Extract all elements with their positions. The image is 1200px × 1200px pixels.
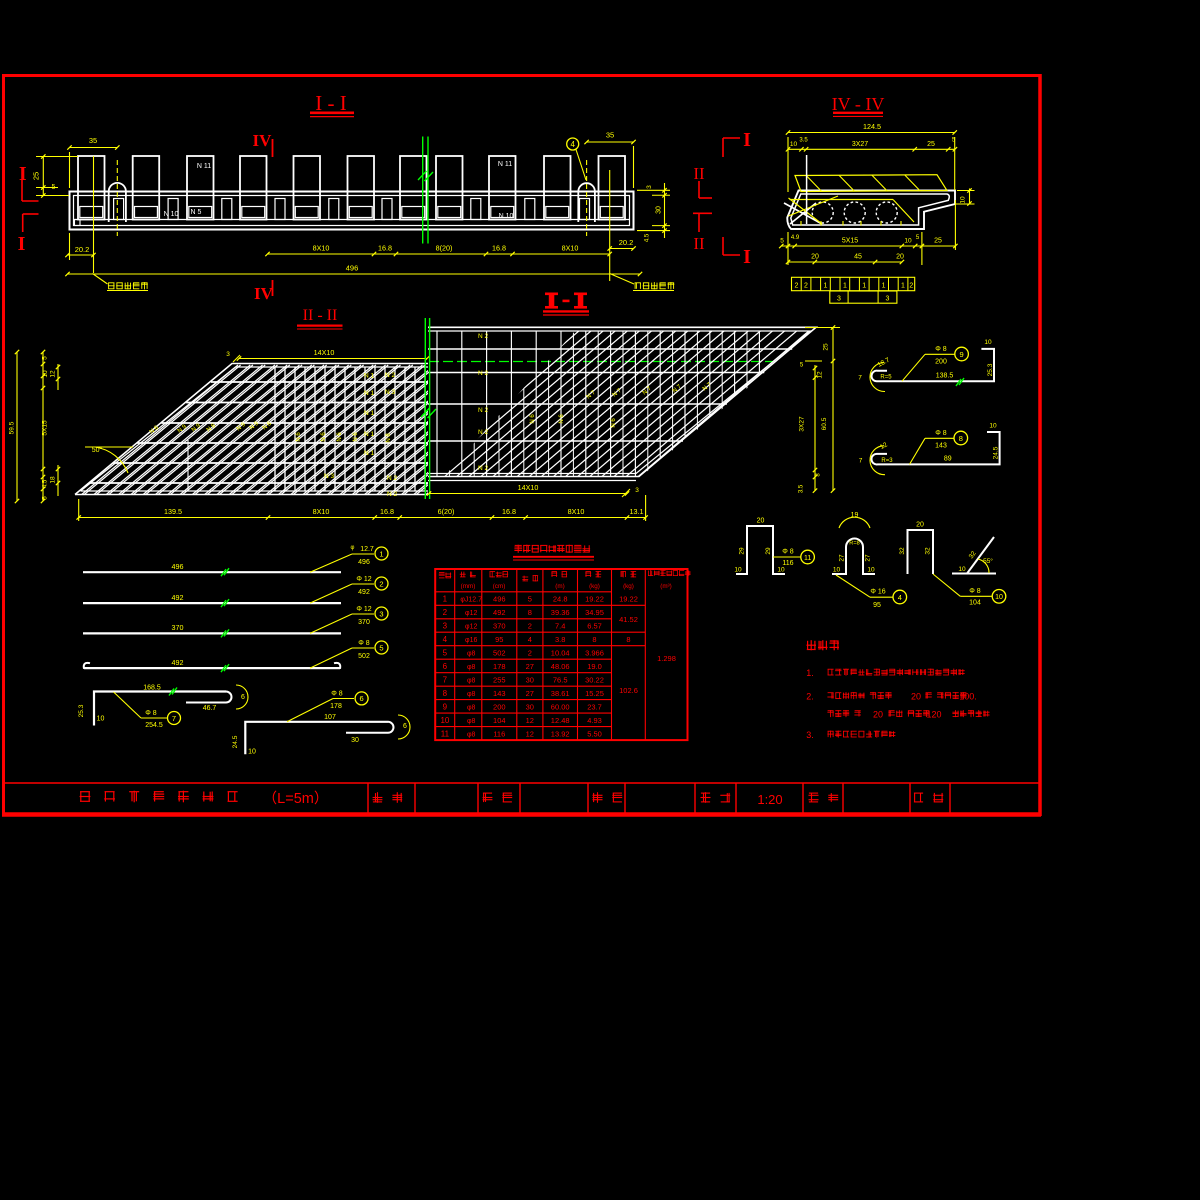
svg-text:48.06: 48.06 bbox=[551, 662, 570, 671]
svg-text:502: 502 bbox=[358, 653, 370, 660]
svg-text:N 6: N 6 bbox=[530, 414, 536, 424]
svg-text:N 8: N 8 bbox=[386, 433, 392, 443]
svg-text:N 6: N 6 bbox=[296, 432, 302, 442]
svg-text:30.22: 30.22 bbox=[585, 676, 604, 685]
svg-text:20: 20 bbox=[911, 692, 921, 702]
svg-text:4.9: 4.9 bbox=[791, 235, 800, 241]
svg-text:12: 12 bbox=[526, 716, 534, 725]
svg-text:30: 30 bbox=[526, 702, 534, 711]
svg-text:(m): (m) bbox=[555, 583, 564, 590]
svg-text:10: 10 bbox=[734, 567, 742, 574]
svg-text:492: 492 bbox=[493, 608, 506, 617]
svg-text:16.8: 16.8 bbox=[380, 507, 394, 516]
svg-text:6.57: 6.57 bbox=[587, 622, 602, 631]
svg-text:3X27: 3X27 bbox=[852, 141, 868, 148]
svg-text:60.00: 60.00 bbox=[551, 702, 570, 711]
svg-text:370: 370 bbox=[358, 619, 370, 626]
svg-text:19.0: 19.0 bbox=[587, 662, 602, 671]
svg-text:5: 5 bbox=[52, 184, 56, 191]
svg-text:34.95: 34.95 bbox=[585, 608, 604, 617]
svg-text:IV: IV bbox=[253, 131, 273, 150]
svg-text:Φ 8: Φ 8 bbox=[969, 588, 981, 595]
svg-text:5: 5 bbox=[443, 649, 448, 658]
svg-text:10: 10 bbox=[958, 566, 966, 573]
svg-text:N 1: N 1 bbox=[364, 410, 375, 417]
svg-text:76.5: 76.5 bbox=[553, 676, 568, 685]
svg-text:3X27: 3X27 bbox=[799, 416, 806, 432]
svg-text:116: 116 bbox=[782, 560, 793, 567]
svg-text:29: 29 bbox=[765, 547, 772, 555]
svg-text:Φ 8: Φ 8 bbox=[358, 640, 370, 647]
svg-text:3.966: 3.966 bbox=[585, 649, 604, 658]
svg-text:24.8: 24.8 bbox=[553, 595, 568, 604]
svg-text:116: 116 bbox=[493, 729, 505, 738]
svg-text:496: 496 bbox=[172, 562, 184, 571]
svg-text:45: 45 bbox=[854, 254, 862, 261]
svg-text:φ8: φ8 bbox=[467, 704, 476, 711]
svg-text:20: 20 bbox=[896, 254, 904, 261]
svg-text:139.5: 139.5 bbox=[164, 507, 182, 516]
svg-text:N 10: N 10 bbox=[499, 213, 514, 220]
svg-text:II - II: II - II bbox=[303, 307, 338, 324]
svg-text:3: 3 bbox=[837, 296, 841, 303]
svg-text:10: 10 bbox=[833, 567, 841, 574]
svg-text:8: 8 bbox=[959, 434, 963, 443]
svg-text:25.3: 25.3 bbox=[78, 704, 85, 717]
svg-text:502: 502 bbox=[493, 649, 506, 658]
svg-text:N 2: N 2 bbox=[478, 465, 489, 472]
svg-text:5: 5 bbox=[379, 643, 383, 652]
svg-text:Φ 8: Φ 8 bbox=[782, 549, 794, 556]
svg-text:4: 4 bbox=[570, 140, 575, 149]
svg-text:Φ 12: Φ 12 bbox=[356, 606, 371, 613]
svg-text:25: 25 bbox=[927, 141, 935, 148]
svg-text:38.61: 38.61 bbox=[551, 689, 570, 698]
svg-text:(kg): (kg) bbox=[623, 583, 634, 590]
svg-text:104: 104 bbox=[969, 600, 981, 607]
svg-text:φ8: φ8 bbox=[467, 718, 476, 725]
svg-text:φ16: φ16 bbox=[465, 637, 477, 644]
svg-text:143: 143 bbox=[493, 689, 506, 698]
svg-text:N 3: N 3 bbox=[324, 473, 335, 480]
svg-text:25.3: 25.3 bbox=[987, 363, 994, 376]
svg-text:16.8: 16.8 bbox=[378, 244, 392, 253]
svg-text:11: 11 bbox=[804, 555, 811, 562]
svg-text:8: 8 bbox=[443, 689, 448, 698]
svg-text:10: 10 bbox=[97, 716, 105, 723]
svg-text:27: 27 bbox=[865, 554, 872, 562]
svg-text:R=5: R=5 bbox=[880, 375, 892, 381]
svg-text:5X15: 5X15 bbox=[42, 420, 49, 436]
svg-text:I: I bbox=[18, 233, 26, 255]
svg-text:2: 2 bbox=[443, 608, 448, 617]
svg-text:(kg): (kg) bbox=[589, 583, 600, 590]
svg-text:Φ 12: Φ 12 bbox=[356, 576, 371, 583]
svg-text:5: 5 bbox=[42, 356, 49, 360]
svg-text:5: 5 bbox=[42, 496, 49, 500]
svg-text:19: 19 bbox=[851, 512, 859, 519]
svg-text:3.5: 3.5 bbox=[799, 484, 805, 493]
svg-text:φ8: φ8 bbox=[467, 664, 476, 671]
svg-text:89: 89 bbox=[944, 456, 952, 463]
svg-text:7: 7 bbox=[859, 458, 863, 465]
svg-text:1: 1 bbox=[843, 283, 847, 290]
svg-text:8: 8 bbox=[528, 608, 532, 617]
svg-text:4: 4 bbox=[443, 635, 448, 644]
svg-text:8X10: 8X10 bbox=[562, 244, 579, 253]
svg-text:100.: 100. bbox=[959, 692, 977, 702]
svg-text:12: 12 bbox=[526, 729, 534, 738]
svg-text:107: 107 bbox=[324, 714, 336, 721]
svg-text:30: 30 bbox=[656, 206, 663, 214]
svg-text:(mm): (mm) bbox=[461, 583, 476, 590]
svg-text:11: 11 bbox=[441, 729, 450, 738]
svg-text:492: 492 bbox=[172, 593, 184, 602]
svg-text:8: 8 bbox=[626, 635, 630, 644]
svg-text:30: 30 bbox=[526, 676, 534, 685]
svg-text:N 1: N 1 bbox=[364, 373, 375, 380]
svg-text:14X10: 14X10 bbox=[518, 483, 539, 492]
svg-text:2: 2 bbox=[528, 649, 532, 658]
svg-text:R=3: R=3 bbox=[881, 458, 893, 464]
svg-text:I: I bbox=[19, 163, 27, 185]
svg-text:25: 25 bbox=[934, 238, 942, 245]
svg-text:2.: 2. bbox=[806, 692, 814, 702]
svg-text:138.5: 138.5 bbox=[936, 373, 954, 380]
svg-text:1: 1 bbox=[443, 595, 448, 604]
svg-text:12: 12 bbox=[817, 371, 824, 379]
svg-text:φ8: φ8 bbox=[467, 678, 476, 685]
svg-text:3: 3 bbox=[646, 185, 653, 189]
svg-text:3: 3 bbox=[886, 296, 890, 303]
svg-text:2: 2 bbox=[794, 283, 798, 290]
svg-text:N 1: N 1 bbox=[364, 390, 375, 397]
svg-text:9: 9 bbox=[960, 350, 964, 359]
svg-text:60.5: 60.5 bbox=[821, 417, 828, 430]
svg-text:10: 10 bbox=[984, 339, 992, 346]
svg-text:4: 4 bbox=[528, 635, 532, 644]
svg-text:496: 496 bbox=[493, 595, 506, 604]
svg-text:3: 3 bbox=[379, 609, 383, 618]
svg-text:N 2: N 2 bbox=[478, 333, 489, 340]
svg-text:6: 6 bbox=[403, 723, 407, 730]
svg-text:255: 255 bbox=[493, 676, 506, 685]
svg-text:N 10: N 10 bbox=[164, 211, 179, 218]
svg-text:24.5: 24.5 bbox=[232, 735, 239, 748]
svg-text:I: I bbox=[743, 246, 751, 268]
svg-text:120: 120 bbox=[926, 710, 941, 720]
svg-text:178: 178 bbox=[330, 703, 342, 710]
svg-text:10: 10 bbox=[867, 567, 875, 574]
svg-text:6(20): 6(20) bbox=[438, 507, 455, 516]
svg-text:5.50: 5.50 bbox=[587, 729, 602, 738]
svg-text:492: 492 bbox=[172, 658, 184, 667]
svg-text:20: 20 bbox=[873, 710, 883, 720]
svg-text:9: 9 bbox=[443, 702, 448, 711]
svg-text:5X15: 5X15 bbox=[842, 238, 858, 245]
svg-text:N 2: N 2 bbox=[478, 407, 489, 414]
svg-text:3.: 3. bbox=[806, 730, 814, 740]
svg-text:I - I: I - I bbox=[315, 91, 346, 115]
svg-text:370: 370 bbox=[493, 622, 506, 631]
svg-text:R=8: R=8 bbox=[849, 541, 859, 547]
svg-text:N 6: N 6 bbox=[611, 418, 617, 428]
svg-text:20: 20 bbox=[757, 518, 765, 525]
svg-text:12.7: 12.7 bbox=[360, 546, 374, 553]
svg-text:104: 104 bbox=[493, 716, 506, 725]
svg-text:IV: IV bbox=[254, 284, 274, 303]
svg-text:N 2: N 2 bbox=[387, 491, 398, 498]
svg-text:124.5: 124.5 bbox=[863, 122, 881, 131]
svg-text:5: 5 bbox=[528, 595, 532, 604]
svg-text:20: 20 bbox=[916, 522, 924, 529]
svg-text:1: 1 bbox=[379, 549, 383, 558]
svg-text:8: 8 bbox=[592, 635, 596, 644]
svg-text:254.5: 254.5 bbox=[145, 722, 163, 729]
svg-text:55°: 55° bbox=[983, 557, 993, 565]
svg-text:N 11: N 11 bbox=[197, 163, 211, 170]
svg-text:φ: φ bbox=[351, 545, 355, 551]
svg-text:20.2: 20.2 bbox=[75, 245, 90, 254]
svg-text:12: 12 bbox=[50, 370, 57, 378]
svg-text:IV - IV: IV - IV bbox=[832, 94, 885, 114]
svg-text:370: 370 bbox=[172, 623, 184, 632]
svg-text:35: 35 bbox=[606, 131, 614, 140]
svg-text:2: 2 bbox=[909, 283, 913, 290]
svg-text:7: 7 bbox=[858, 375, 862, 382]
svg-text:496: 496 bbox=[358, 559, 370, 566]
svg-text:1: 1 bbox=[824, 283, 828, 290]
svg-text:46.7: 46.7 bbox=[203, 705, 217, 712]
svg-text:1: 1 bbox=[901, 283, 905, 290]
svg-text:492: 492 bbox=[358, 589, 370, 596]
svg-text:N 1: N 1 bbox=[364, 431, 375, 438]
svg-text:29: 29 bbox=[739, 547, 746, 555]
svg-text:32: 32 bbox=[925, 547, 932, 555]
svg-text:1.298: 1.298 bbox=[657, 654, 676, 663]
svg-text:10: 10 bbox=[248, 749, 256, 756]
svg-text:1: 1 bbox=[862, 283, 866, 290]
svg-text:6: 6 bbox=[443, 662, 448, 671]
svg-text:6: 6 bbox=[241, 694, 245, 701]
svg-text:II: II bbox=[693, 164, 705, 183]
svg-text:8X10: 8X10 bbox=[568, 507, 585, 516]
svg-text:32: 32 bbox=[899, 547, 906, 555]
svg-text:30: 30 bbox=[351, 737, 359, 744]
svg-text:N 6: N 6 bbox=[353, 432, 359, 442]
svg-text:200: 200 bbox=[935, 359, 947, 366]
svg-text:(m³): (m³) bbox=[660, 583, 672, 590]
svg-text:N 2: N 2 bbox=[478, 370, 489, 377]
svg-text:N 2: N 2 bbox=[387, 475, 398, 482]
svg-text:8X10: 8X10 bbox=[313, 507, 330, 516]
svg-text:4.5: 4.5 bbox=[43, 479, 49, 488]
svg-text:(cm): (cm) bbox=[493, 583, 506, 590]
svg-text:13.92: 13.92 bbox=[551, 729, 570, 738]
svg-text:496: 496 bbox=[346, 264, 359, 273]
svg-text:φJ12.7: φJ12.7 bbox=[460, 597, 482, 604]
svg-text:178: 178 bbox=[493, 662, 506, 671]
svg-text:Φ 8: Φ 8 bbox=[331, 691, 343, 698]
svg-text:N 5: N 5 bbox=[191, 209, 202, 216]
svg-text:8X10: 8X10 bbox=[313, 244, 330, 253]
svg-text:10: 10 bbox=[440, 716, 449, 725]
svg-text:7: 7 bbox=[172, 714, 176, 723]
svg-text:10: 10 bbox=[995, 594, 1003, 601]
svg-text:6: 6 bbox=[360, 694, 364, 703]
svg-text:3: 3 bbox=[635, 487, 639, 494]
svg-text:φ8: φ8 bbox=[467, 691, 476, 698]
svg-text:Φ 16: Φ 16 bbox=[870, 589, 885, 596]
svg-text:2: 2 bbox=[379, 579, 383, 588]
svg-text:10: 10 bbox=[42, 370, 49, 378]
svg-text:N 2: N 2 bbox=[478, 429, 489, 436]
svg-text:4: 4 bbox=[898, 593, 902, 602]
svg-text:59.5: 59.5 bbox=[9, 421, 16, 434]
svg-text:95: 95 bbox=[873, 602, 881, 609]
svg-text:φ8: φ8 bbox=[467, 651, 476, 658]
svg-text:Φ 8: Φ 8 bbox=[145, 710, 157, 717]
svg-text:20.2: 20.2 bbox=[619, 238, 634, 247]
svg-text:39.36: 39.36 bbox=[551, 608, 570, 617]
svg-text:（L=5m）: （L=5m） bbox=[263, 790, 329, 807]
svg-text:3: 3 bbox=[226, 351, 230, 358]
svg-text:27: 27 bbox=[526, 689, 534, 698]
svg-text:16.8: 16.8 bbox=[502, 507, 516, 516]
svg-text:16.8: 16.8 bbox=[492, 244, 506, 253]
svg-text:1: 1 bbox=[882, 283, 886, 290]
svg-text:4.93: 4.93 bbox=[587, 716, 602, 725]
svg-text:41.52: 41.52 bbox=[619, 615, 638, 624]
svg-text:5: 5 bbox=[780, 238, 784, 245]
svg-text:N 6: N 6 bbox=[337, 432, 343, 442]
svg-text:143: 143 bbox=[935, 443, 947, 450]
svg-text:3.8: 3.8 bbox=[555, 635, 565, 644]
svg-text:φ8: φ8 bbox=[467, 731, 476, 738]
svg-text:2: 2 bbox=[804, 283, 808, 290]
svg-text:Φ 8: Φ 8 bbox=[935, 430, 947, 437]
svg-text:4.5: 4.5 bbox=[645, 233, 651, 242]
svg-text:20: 20 bbox=[811, 254, 819, 261]
svg-text:Φ 8: Φ 8 bbox=[935, 346, 947, 353]
svg-text:102.6: 102.6 bbox=[619, 686, 638, 695]
svg-text:15.25: 15.25 bbox=[585, 689, 604, 698]
svg-text:N 6: N 6 bbox=[559, 414, 565, 424]
svg-text:φ12: φ12 bbox=[465, 624, 477, 631]
svg-text:7: 7 bbox=[443, 676, 448, 685]
svg-text:35: 35 bbox=[89, 136, 97, 145]
svg-text:25: 25 bbox=[823, 343, 830, 351]
svg-text:2: 2 bbox=[528, 622, 532, 631]
svg-text:II: II bbox=[693, 234, 705, 253]
svg-text:10.04: 10.04 bbox=[551, 649, 570, 658]
svg-text:φ12: φ12 bbox=[465, 610, 477, 617]
svg-text:10: 10 bbox=[960, 196, 967, 204]
svg-text:N 6: N 6 bbox=[321, 432, 327, 442]
svg-text:10: 10 bbox=[777, 567, 785, 574]
svg-text:13.1: 13.1 bbox=[630, 507, 644, 516]
svg-text:1.: 1. bbox=[806, 668, 814, 678]
svg-text:N 11: N 11 bbox=[498, 161, 512, 168]
svg-text:24.5: 24.5 bbox=[993, 446, 1000, 459]
svg-text:I: I bbox=[743, 129, 751, 151]
svg-text:168.5: 168.5 bbox=[143, 685, 161, 692]
svg-text:N 1: N 1 bbox=[364, 450, 375, 457]
svg-text:50°: 50° bbox=[92, 446, 103, 454]
svg-text:N 3: N 3 bbox=[385, 389, 396, 396]
svg-text:8(20): 8(20) bbox=[436, 244, 453, 253]
svg-text:10: 10 bbox=[989, 423, 997, 430]
svg-text:7.4: 7.4 bbox=[555, 622, 565, 631]
svg-text:27: 27 bbox=[526, 662, 534, 671]
svg-text:95: 95 bbox=[495, 635, 503, 644]
svg-text:1:20: 1:20 bbox=[757, 792, 782, 807]
svg-text:3.5: 3.5 bbox=[799, 138, 808, 144]
svg-text:19.22: 19.22 bbox=[619, 595, 638, 604]
svg-text:25: 25 bbox=[32, 172, 41, 180]
svg-text:N 2: N 2 bbox=[385, 372, 396, 379]
svg-text:10: 10 bbox=[790, 141, 798, 148]
svg-text:12.48: 12.48 bbox=[551, 716, 570, 725]
svg-text:200: 200 bbox=[493, 702, 506, 711]
svg-text:18: 18 bbox=[50, 476, 57, 484]
svg-text:14X10: 14X10 bbox=[314, 348, 335, 357]
svg-text:19.22: 19.22 bbox=[585, 595, 604, 604]
svg-text:3: 3 bbox=[443, 622, 448, 631]
svg-text:27: 27 bbox=[839, 554, 846, 562]
svg-text:23.7: 23.7 bbox=[587, 702, 602, 711]
svg-text:10: 10 bbox=[904, 238, 912, 245]
